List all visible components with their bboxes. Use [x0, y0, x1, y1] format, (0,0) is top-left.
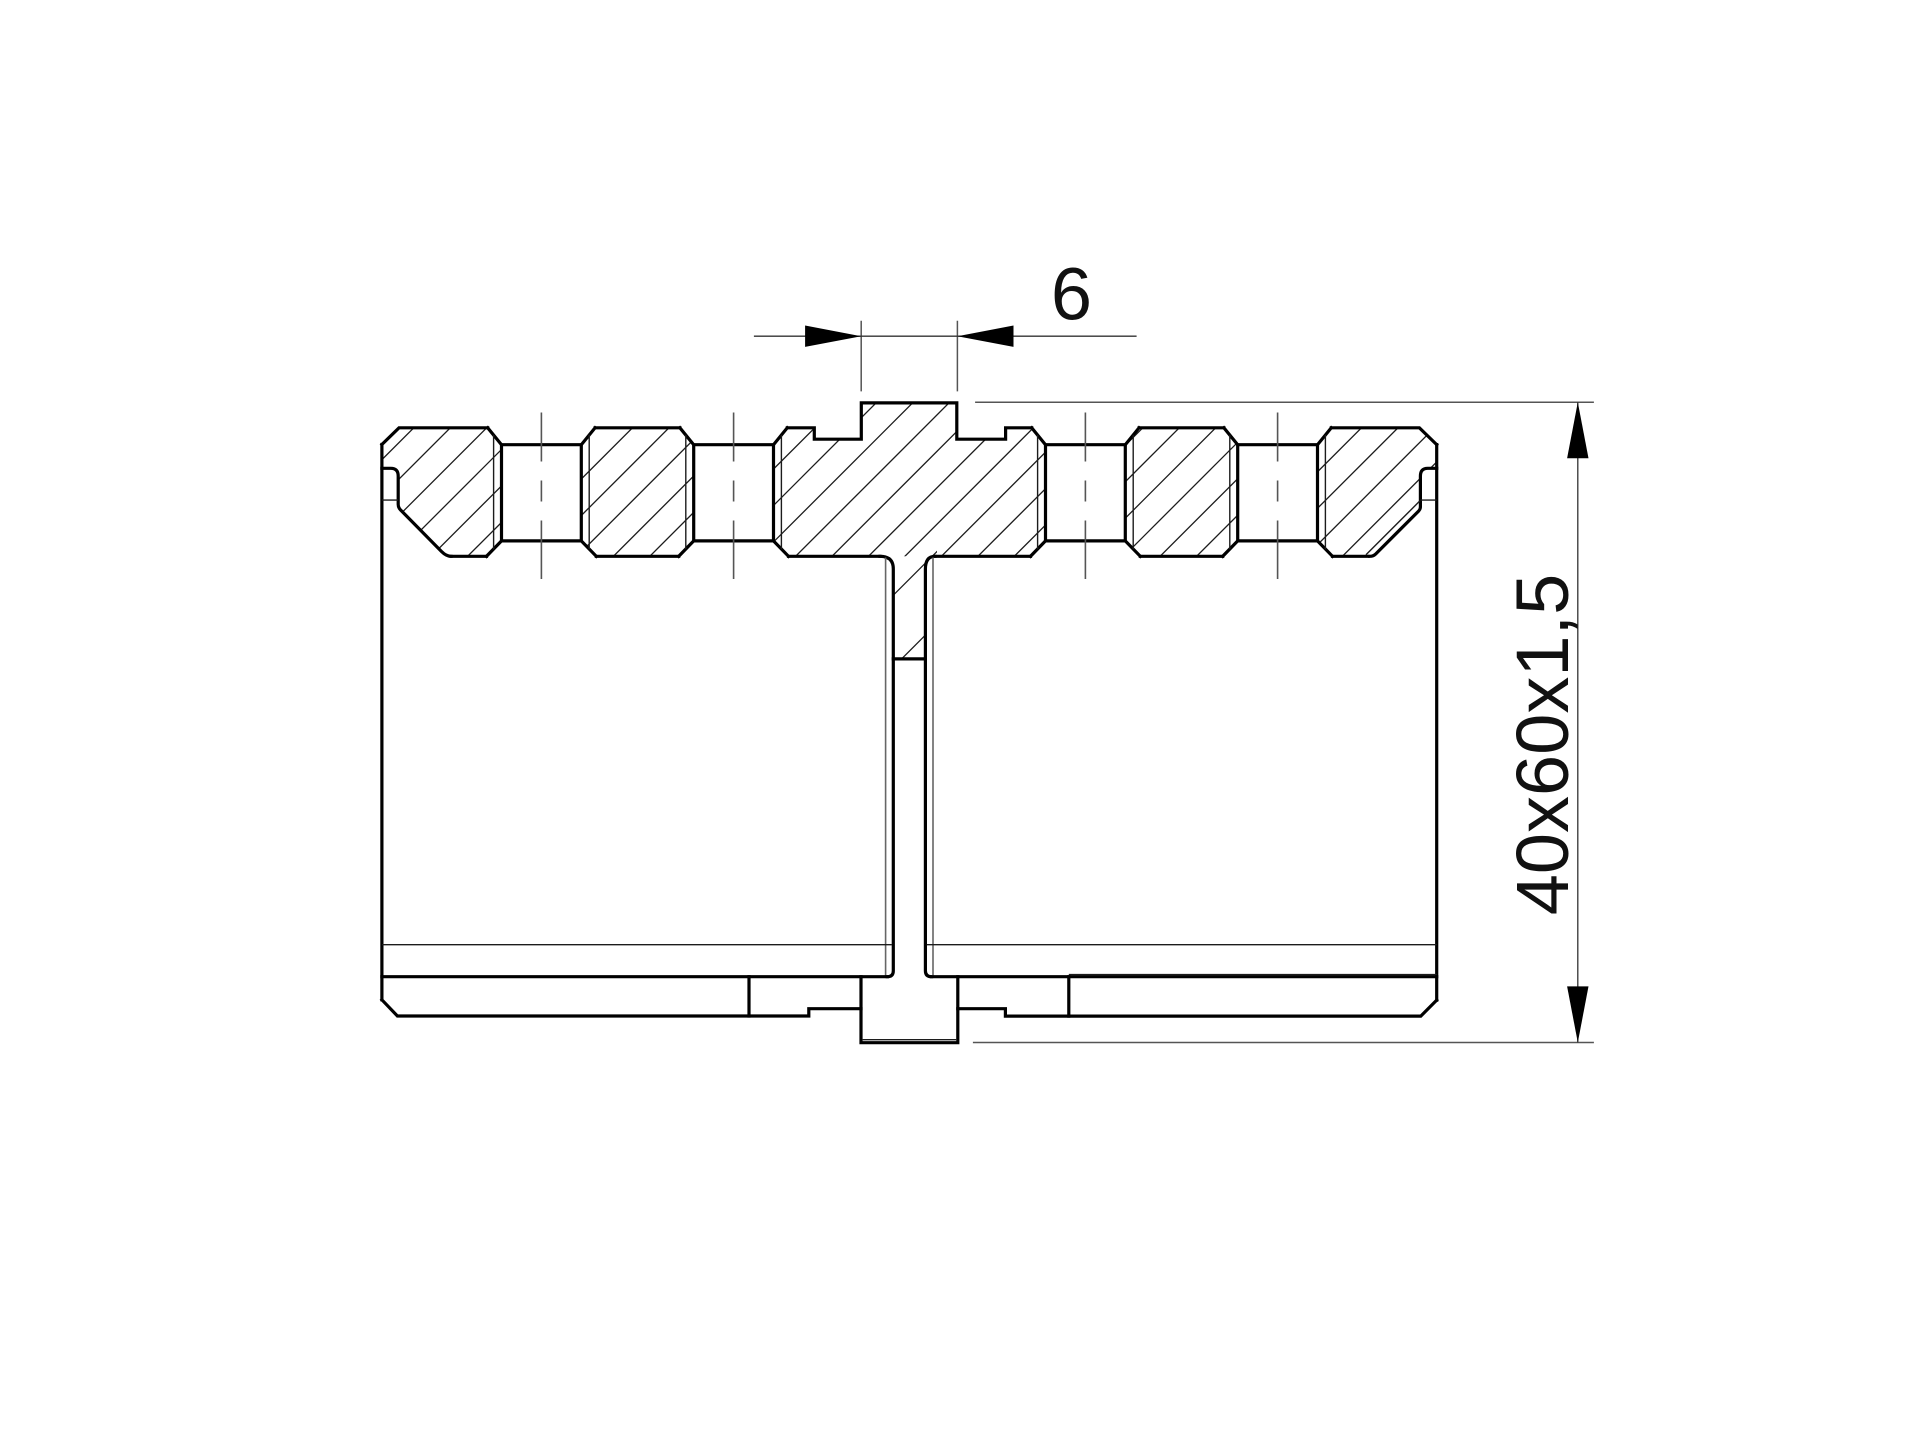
svg-text:40x60x1,5: 40x60x1,5 — [1501, 574, 1584, 916]
svg-text:6: 6 — [1051, 253, 1092, 336]
